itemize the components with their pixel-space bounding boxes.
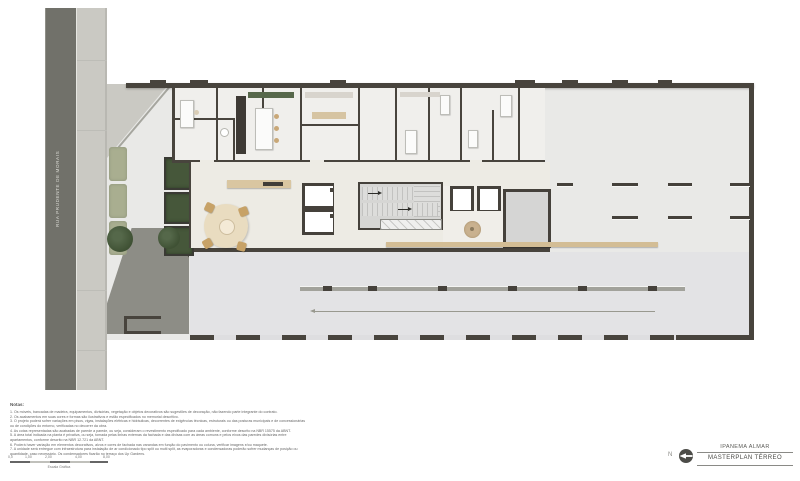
notes-heading: Notas: [10, 402, 24, 407]
reception-counter-inset [263, 182, 283, 186]
entry-gate-wall [124, 316, 161, 334]
elevator-door-jamb [330, 188, 334, 192]
facade-pilaster [562, 80, 578, 83]
kitchen-plant-strip [248, 92, 294, 98]
ramp-retaining-wall [300, 286, 685, 291]
room-wall [460, 88, 462, 162]
street-tree [158, 227, 180, 249]
note-item: 5. A área total indicada na planta é pri… [10, 433, 310, 442]
lobby-glass-front [189, 162, 191, 248]
room-wall [492, 110, 494, 162]
facade-pilaster [658, 80, 672, 83]
facade-pilaster [515, 80, 535, 83]
facade-pilaster [612, 80, 628, 83]
kitchen-stool [274, 126, 279, 131]
notes-block: 1. Os móveis, bancadas de madeira, equip… [10, 410, 310, 457]
room-wall [172, 88, 175, 163]
scale-tick-label: 4,00 [75, 455, 82, 459]
elevator-car [477, 186, 501, 211]
sidewalk-joint [77, 350, 107, 351]
masterplan-sheet: RUA PRUDENTE DE MORAIS [0, 0, 800, 481]
room-wall [216, 88, 218, 162]
elevator-car [450, 186, 474, 211]
ramp-wall-column [508, 286, 517, 291]
facade-pilaster [150, 80, 166, 83]
ramp-wall-column [648, 286, 657, 291]
sidewalk-joint [77, 290, 107, 291]
fixture [500, 95, 512, 117]
counter [400, 92, 440, 97]
wall-stub [557, 183, 573, 186]
wood-bench [386, 242, 658, 247]
technical-room [503, 189, 551, 248]
stair-arrow-head-icon [408, 207, 412, 211]
elevator-car [302, 183, 334, 209]
room-wall [358, 88, 360, 162]
scale-tick-label: 0,0 [8, 455, 13, 459]
scale-bar-labels: 0,0 1,00 2,00 4,00 8,00 [8, 455, 118, 460]
project-title: IPANEMA ALMAR [697, 444, 793, 450]
counter [305, 92, 353, 98]
kitchen-stool [274, 138, 279, 143]
ramp-wall-column [323, 286, 332, 291]
scale-tick-label: 8,00 [103, 455, 110, 459]
sheet-title: MASTERPLAN TÉRREO [697, 455, 793, 461]
hall-rug-center [470, 227, 474, 231]
toilet-fixture [220, 128, 229, 137]
wall-stub [612, 216, 638, 219]
round-table [219, 219, 235, 235]
garage-strip [190, 252, 750, 336]
stair-arrow-head-icon [378, 191, 382, 195]
facade-pilaster [330, 80, 346, 83]
drive-direction-line [315, 311, 655, 312]
wall-stub [730, 183, 750, 186]
fixture [440, 95, 450, 115]
wall-stub [730, 216, 750, 219]
scale-tick-label: 2,00 [45, 455, 52, 459]
room-wall [300, 124, 358, 126]
ramp-wall-column [368, 286, 377, 291]
facade-pilaster [190, 80, 208, 83]
note-item: 1. Os móveis, bancadas de madeira, equip… [10, 410, 310, 415]
street-curb-left [45, 8, 46, 390]
scale-bar-caption: Escala Gráfica [10, 465, 108, 469]
exterior-wall-right [749, 83, 754, 340]
ramp-wall-column [438, 286, 447, 291]
fixture [405, 130, 417, 154]
street-name-label: RUA PRUDENTE DE MORAIS [55, 165, 67, 227]
elevator-car [302, 209, 334, 235]
scale-bar [10, 461, 108, 463]
room-wall [518, 88, 520, 162]
note-item: 3. O projeto poderá sofrer variações em … [10, 419, 310, 428]
sidewalk-joint [77, 60, 107, 61]
scale-tick-label: 1,00 [25, 455, 32, 459]
sidewalk-joint [77, 130, 107, 131]
room-wall [428, 88, 430, 162]
north-label: N [668, 452, 672, 458]
street-tree [107, 226, 133, 252]
sidewalk [77, 8, 107, 390]
wall-stub [668, 183, 692, 186]
office-desk [180, 100, 194, 128]
kitchen-island [255, 108, 273, 150]
stair-void-hatch [380, 219, 442, 230]
hedge-planting [109, 184, 127, 218]
wall-stub [668, 216, 692, 219]
ramp-wall-column [578, 286, 587, 291]
wood-counter [312, 112, 346, 119]
compass-north-icon [678, 448, 694, 464]
fixture [468, 130, 478, 148]
drive-arrow-icon [310, 309, 315, 313]
kitchen-cabinets [236, 96, 246, 154]
hedge-planting [109, 147, 127, 181]
room-wall [395, 88, 397, 162]
title-block-rule [697, 452, 793, 453]
stair-direction-arrow [398, 209, 408, 210]
stair-direction-arrow [368, 193, 378, 194]
elevator-door-jamb [330, 214, 334, 218]
title-block-rule [697, 465, 793, 466]
exterior-wall-bottom-columns [190, 335, 676, 340]
room-wall [233, 118, 235, 162]
room-wall [262, 88, 264, 108]
kitchen-stool [274, 114, 279, 119]
office-chair [194, 110, 199, 115]
exterior-wall-bottom-solid [676, 335, 754, 340]
wall-stub [612, 183, 638, 186]
